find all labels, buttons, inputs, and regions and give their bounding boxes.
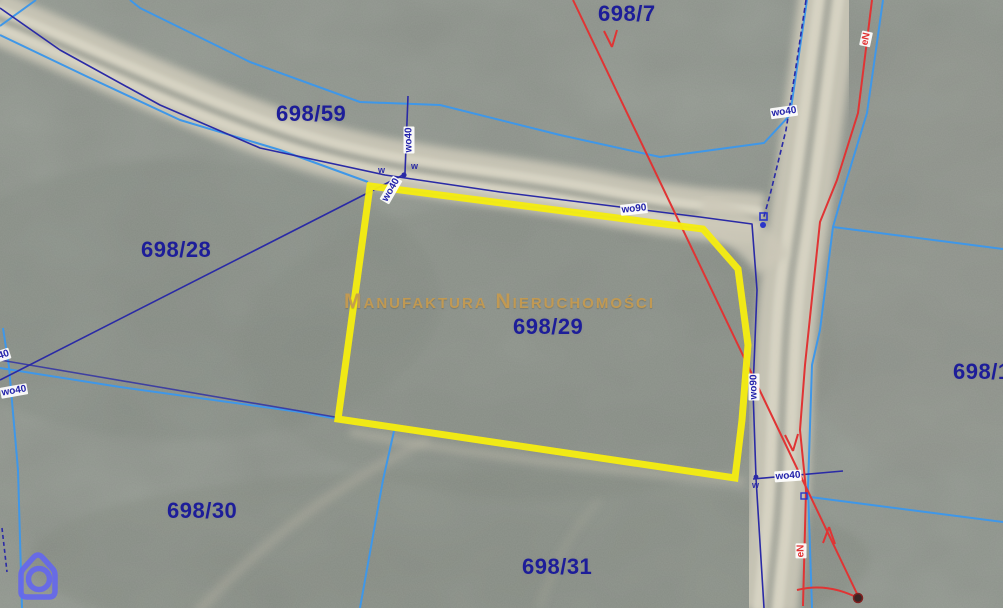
map-canvas[interactable] [0,0,1003,608]
utility-pole-marker [854,594,863,603]
cadastral-map[interactable]: Manufaktura Nieruchomości 698/7698/59698… [0,0,1003,608]
